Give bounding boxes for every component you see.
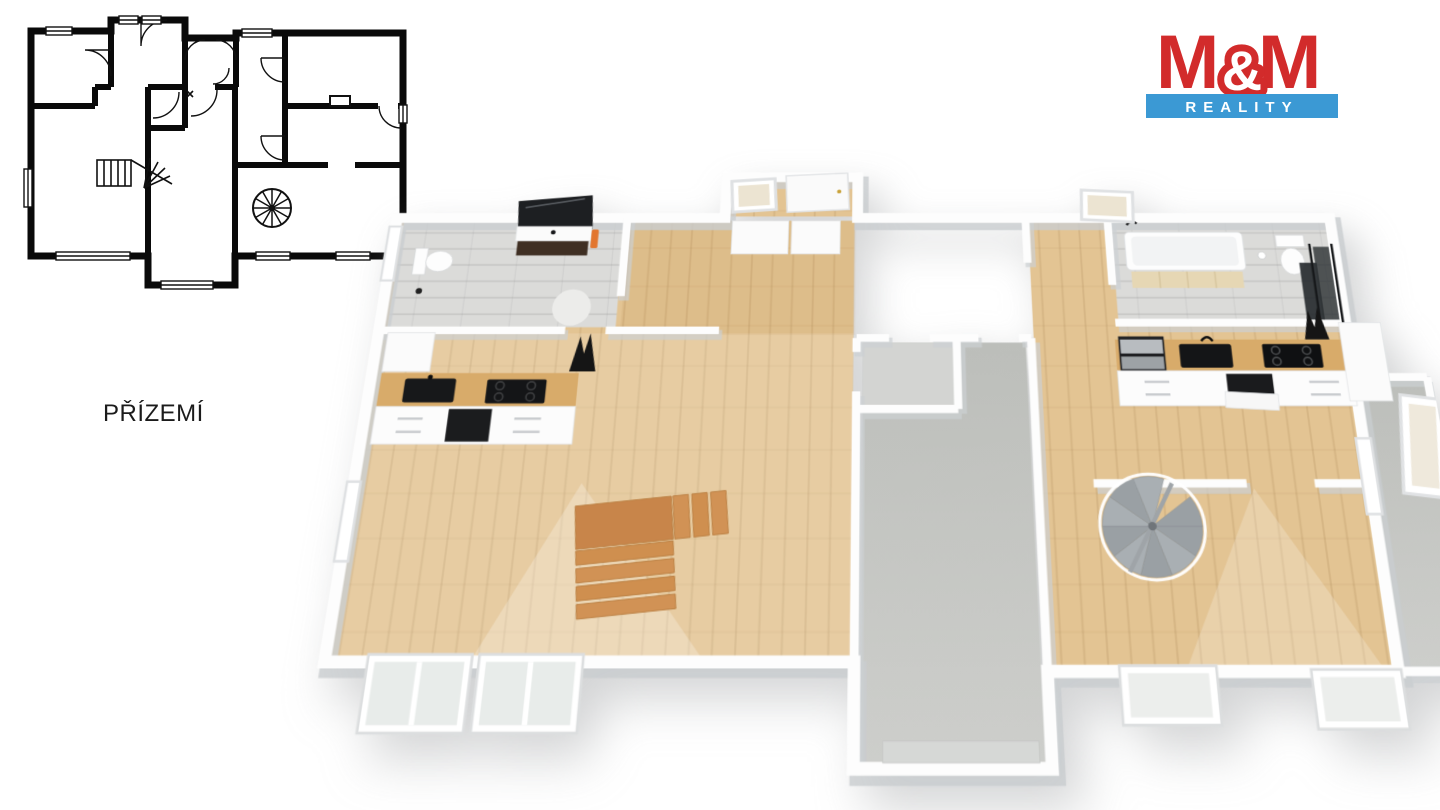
real-estate-floorplan-page: PŘÍZEMÍ M M & REALITY [0, 0, 1440, 810]
kitchen-sink [402, 379, 457, 403]
plan2d-straight-stairs [97, 158, 172, 188]
hall-top-window [1081, 190, 1133, 222]
garage-door [883, 741, 1040, 763]
floor-label: PŘÍZEMÍ [103, 400, 204, 428]
tall-cabinet [382, 333, 435, 372]
french-window-2 [470, 654, 583, 733]
kitchen-sink [1179, 344, 1234, 367]
oven [444, 409, 492, 442]
logo-mm: M M & [1156, 28, 1321, 105]
wardrobe [731, 221, 789, 254]
right-room-window-1 [1119, 666, 1222, 726]
floor-plan-3d-wrap [322, 96, 1440, 804]
plan2d-spiral-stairs [253, 189, 291, 227]
storage-window [1400, 395, 1440, 499]
vestibule-floor [863, 343, 954, 406]
floor-plan-3d-tilt [247, 133, 1440, 810]
entry-window [732, 179, 776, 213]
front-door [786, 173, 849, 212]
entry-hall [731, 221, 840, 254]
cooktop [485, 379, 547, 403]
cooktop [1262, 344, 1324, 367]
logo-ampersand: & [1222, 39, 1262, 102]
logo-m-right: M [1258, 28, 1321, 105]
right-room-window-2 [1311, 669, 1410, 729]
floor-plan-3d [247, 133, 1440, 810]
oven-microwave-stack [1118, 336, 1167, 373]
logo-m-left: M [1156, 28, 1219, 105]
wardrobe [791, 221, 840, 254]
french-window-1 [357, 654, 473, 733]
